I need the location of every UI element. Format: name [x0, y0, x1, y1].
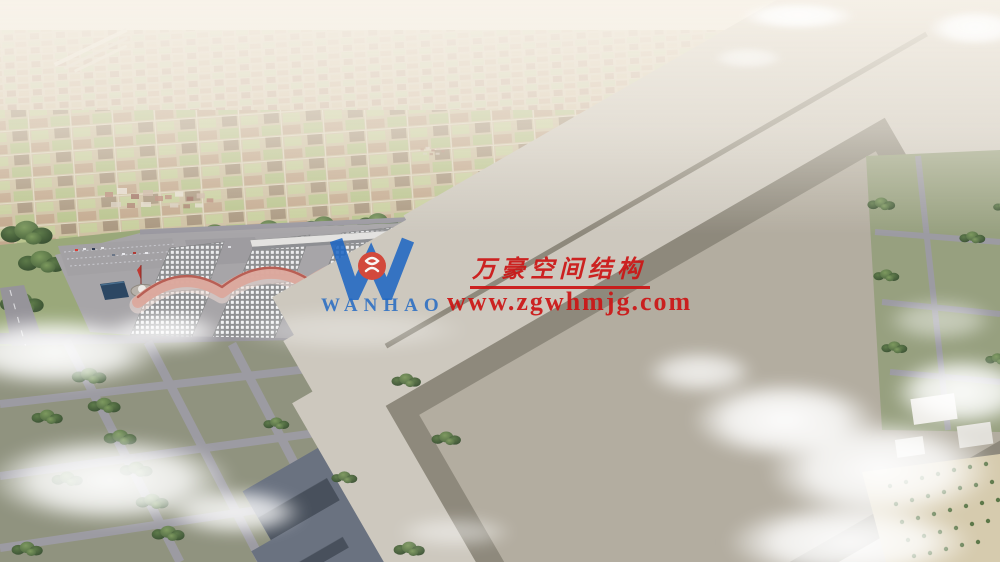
rendered-scene — [0, 0, 1000, 562]
pond — [100, 281, 129, 300]
atmospheric-haze — [0, 0, 1000, 235]
aerial-rendering: WANHAO 万豪空间结构 www.zgwhmjg.com — [0, 0, 1000, 562]
